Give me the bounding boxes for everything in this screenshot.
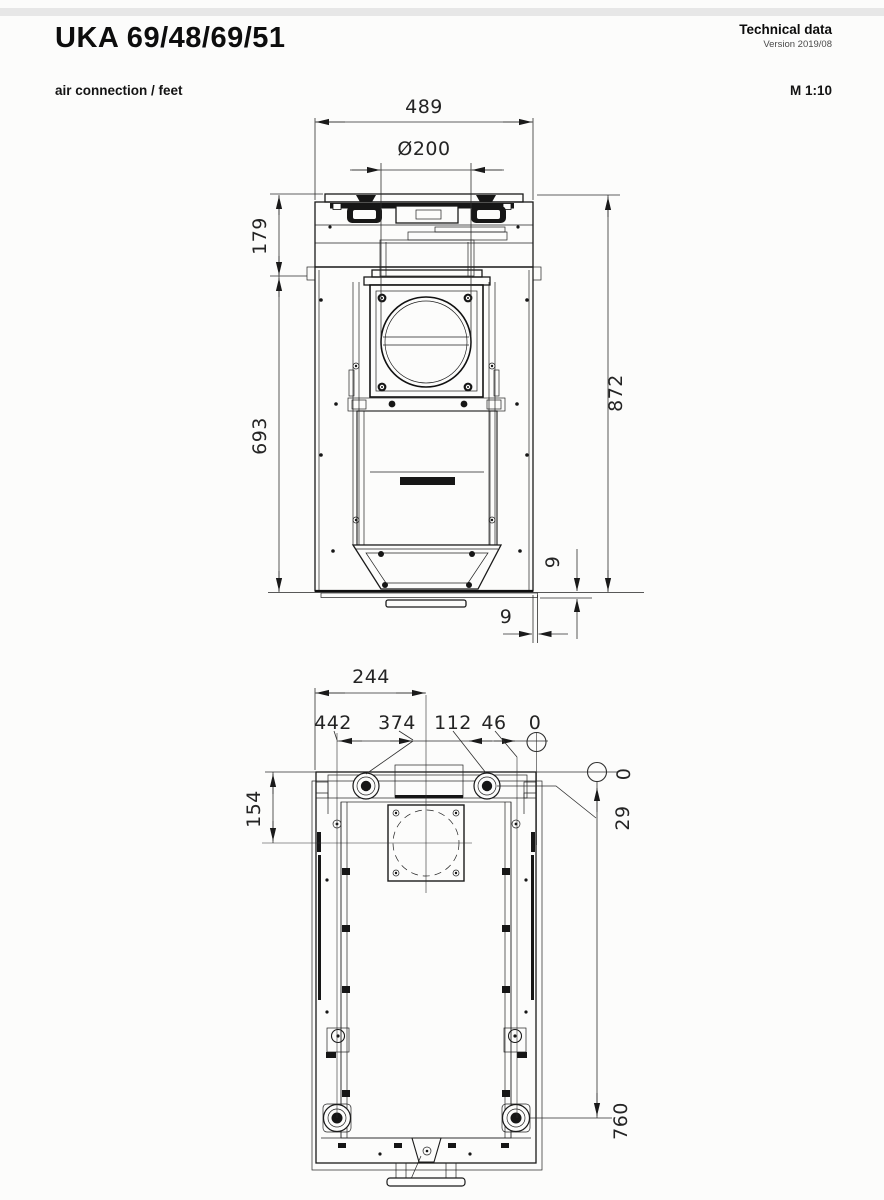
dim-total-height: 872	[605, 374, 627, 412]
technical-drawing-canvas: 489 Ø200 179 693	[0, 0, 884, 1200]
dim-duct-diameter: Ø200	[397, 138, 450, 160]
dim-front-feet-offset: 29	[612, 805, 634, 830]
technical-data-sheet: UKA 69/48/69/51 Technical data Version 2…	[0, 0, 884, 1200]
dim-center-from-left: 244	[352, 666, 390, 688]
front-foot-left	[353, 773, 379, 799]
base-foot-bar	[386, 600, 466, 607]
dim-foot-374: 374	[378, 712, 416, 734]
dim-upper-height: 179	[249, 217, 271, 255]
dim-lower-height: 693	[249, 417, 271, 455]
dim-datum-top: 0	[529, 712, 542, 734]
dim-rear-feet-offset: 760	[610, 1102, 632, 1140]
dim-base-gap-vertical: 9	[542, 556, 564, 569]
front-foot-right	[474, 773, 500, 799]
dim-foot-442: 442	[314, 712, 352, 734]
bottom-foot-bar	[387, 1178, 465, 1186]
dim-foot-46: 46	[481, 712, 506, 734]
dim-total-width: 489	[405, 96, 443, 118]
dim-duct-center-offset: 154	[243, 790, 265, 828]
plan-view-dimensions: 244 442 374 112 46 0	[243, 666, 635, 1140]
dim-base-gap-horizontal: 9	[500, 606, 513, 628]
front-view-drawing: 489 Ø200 179 693	[249, 96, 644, 643]
dim-foot-112: 112	[434, 712, 472, 734]
plan-view-drawing: 244 442 374 112 46 0	[243, 666, 635, 1186]
dim-datum-right: 0	[613, 768, 635, 781]
rear-foot-right	[503, 1105, 530, 1132]
rating-label	[400, 477, 455, 485]
